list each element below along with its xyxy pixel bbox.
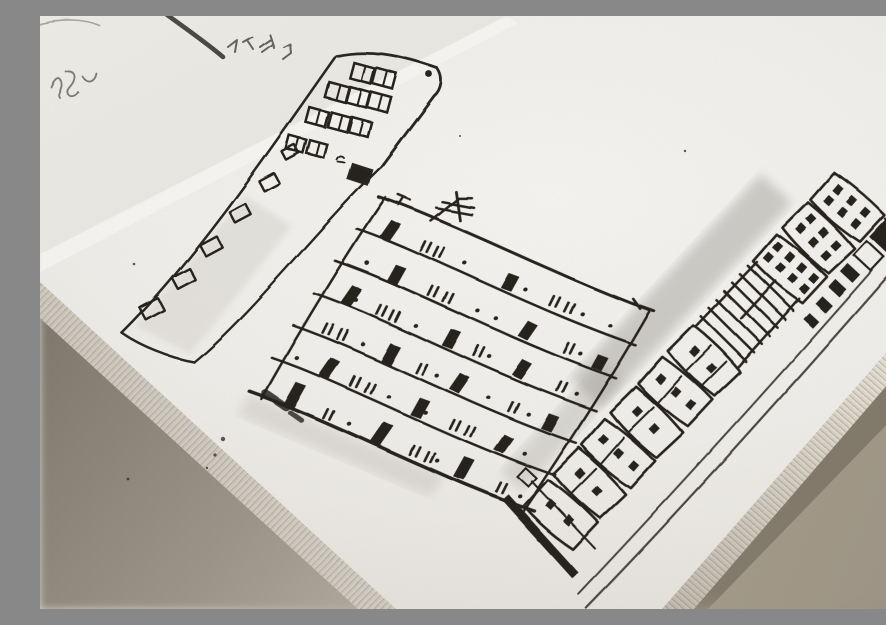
sketchbook-photo: [40, 16, 886, 609]
ink-speck: [127, 478, 130, 481]
ink-speck: [206, 467, 208, 469]
ink-speck: [133, 263, 136, 266]
ink-sketch-layer: [40, 16, 886, 609]
ink-speck: [684, 150, 686, 152]
ink-speck: [570, 312, 572, 314]
ink-blob: [426, 71, 433, 78]
ink-speck: [221, 437, 225, 441]
ink-speck: [290, 347, 292, 349]
ink-speck: [213, 453, 216, 456]
ink-speck: [459, 135, 461, 137]
